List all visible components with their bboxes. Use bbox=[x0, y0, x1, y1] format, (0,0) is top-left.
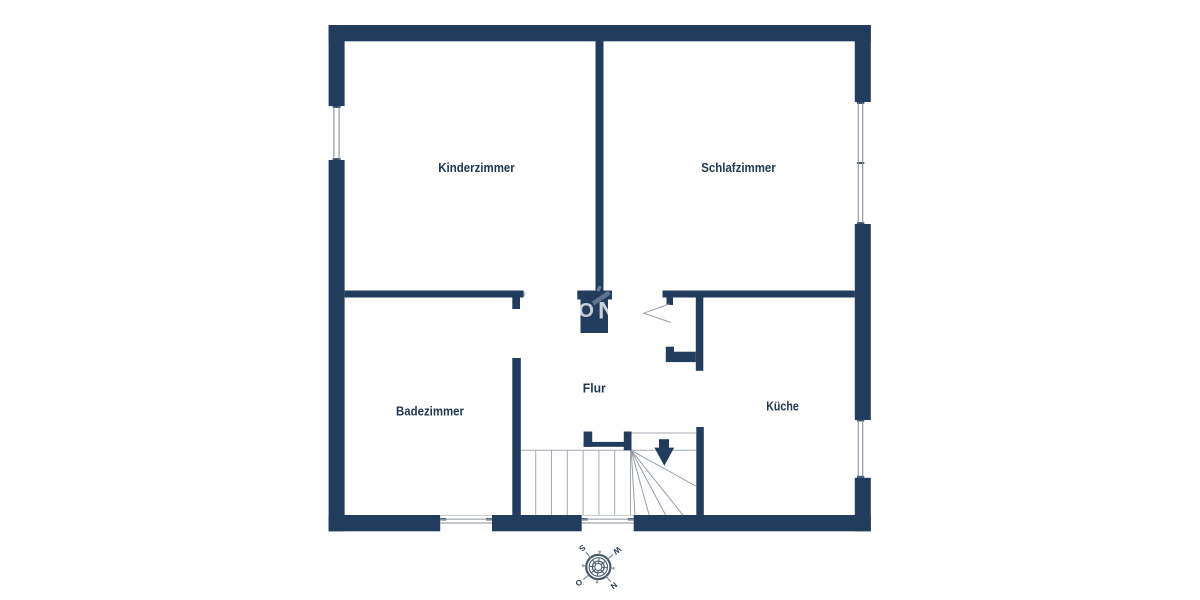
svg-text:Schlafzimmer: Schlafzimmer bbox=[701, 160, 776, 175]
svg-text:Badezimmer: Badezimmer bbox=[396, 403, 464, 418]
svg-text:Flur: Flur bbox=[583, 381, 606, 396]
svg-text:Küche: Küche bbox=[766, 399, 799, 414]
svg-text:Kinderzimmer: Kinderzimmer bbox=[438, 160, 515, 175]
svg-text:O: O bbox=[578, 300, 594, 322]
